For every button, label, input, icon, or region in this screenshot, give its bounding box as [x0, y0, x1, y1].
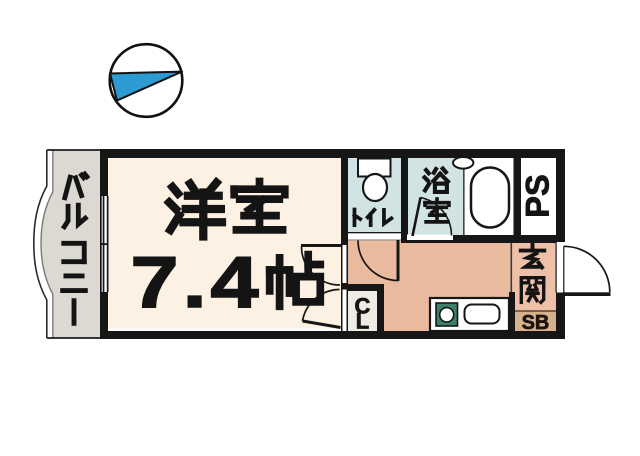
svg-text:L: L: [356, 309, 369, 334]
svg-text:SB: SB: [522, 312, 550, 334]
svg-text:PS: PS: [520, 174, 556, 217]
svg-text:7.4: 7.4: [131, 242, 263, 323]
